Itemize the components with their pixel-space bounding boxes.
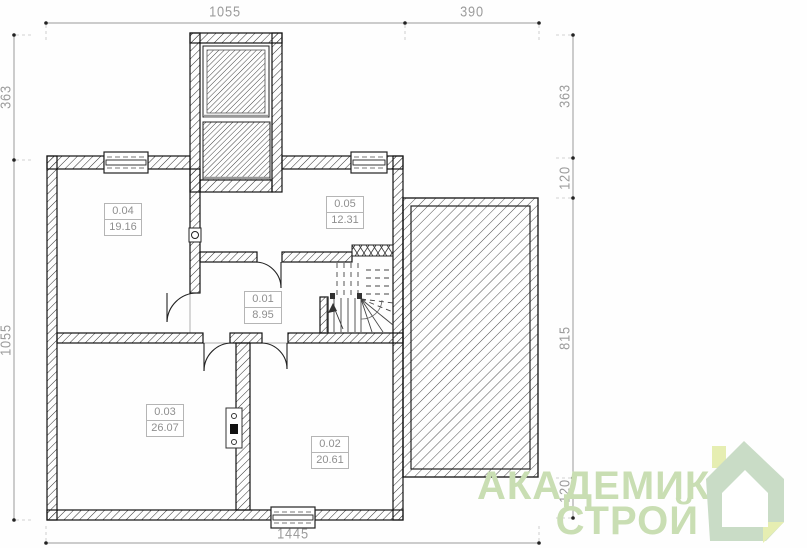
dimension-left-upper: 363 [0, 85, 15, 109]
staircase [327, 263, 393, 332]
window-top-right [351, 152, 387, 173]
door-room-004 [167, 293, 197, 322]
terrace [403, 198, 538, 477]
dimension-bottom-total: 1445 [277, 526, 309, 543]
room-number: 0.05 [327, 197, 363, 213]
stair-parapet [352, 245, 393, 256]
dimension-left-main: 1055 [0, 324, 15, 356]
room-label-0-01: 0.01 8.95 [244, 291, 282, 324]
dimension-right-offset-top: 120 [557, 166, 574, 190]
room-number: 0.04 [105, 204, 141, 220]
room-number: 0.02 [312, 437, 348, 453]
door-room-003 [204, 343, 232, 371]
room-number: 0.03 [147, 405, 183, 421]
porch-step-block-lower [203, 122, 270, 180]
room-label-0-02: 0.02 20.61 [311, 436, 349, 469]
dimension-right-terrace: 815 [557, 326, 574, 350]
wall-vent [189, 228, 201, 242]
dimension-top-main: 1055 [209, 4, 241, 21]
room-area: 19.16 [105, 220, 141, 235]
floor-plan-canvas: 0.04 19.16 0.05 12.31 0.01 8.95 0.03 26.… [0, 0, 807, 548]
boiler-unit [226, 408, 242, 448]
room-label-0-04: 0.04 19.16 [104, 203, 142, 236]
porch [190, 33, 282, 192]
dimension-right-upper: 363 [557, 84, 574, 108]
door-room-002 [262, 343, 287, 369]
house-logo-icon [700, 434, 792, 546]
door-room-005 [255, 262, 281, 288]
room-area: 20.61 [312, 453, 348, 468]
room-label-0-03: 0.03 26.07 [146, 404, 184, 437]
logo-text-line2: СТРОЙ [477, 501, 699, 541]
room-area: 12.31 [327, 213, 363, 228]
room-area: 8.95 [245, 308, 281, 323]
room-number: 0.01 [245, 292, 281, 308]
room-area: 26.07 [147, 421, 183, 436]
window-top-left [104, 152, 148, 173]
dimension-top-terrace: 390 [460, 4, 484, 21]
room-label-0-05: 0.05 12.31 [326, 196, 364, 229]
